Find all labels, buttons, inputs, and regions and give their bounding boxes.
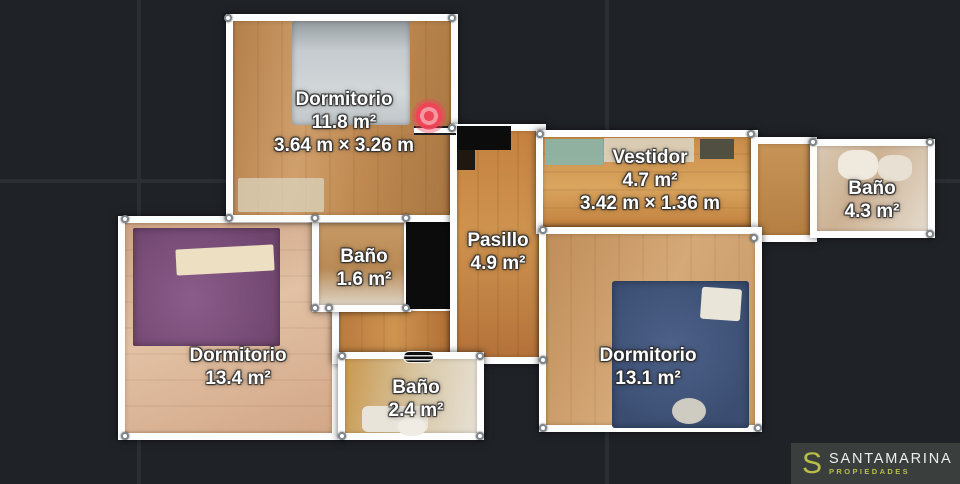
agency-logo-icon: S — [802, 449, 822, 479]
shelf-clutter — [604, 138, 694, 162]
shelf-clutter — [700, 139, 734, 159]
agency-name: SANTAMARINA — [829, 451, 952, 467]
wall-node — [536, 130, 544, 138]
pillow — [700, 287, 742, 322]
wall-node — [325, 304, 333, 312]
pillow — [175, 244, 274, 275]
wall-node — [750, 234, 758, 242]
agency-logo: S SANTAMARINA PROPIEDADES — [791, 443, 960, 484]
room-bano-central[interactable] — [312, 216, 411, 312]
wall-node — [338, 352, 346, 360]
wall-node — [311, 214, 319, 222]
floorplan-viewer: Dormitorio 11.8 m² 3.64 m × 3.26 m Vesti… — [0, 0, 960, 484]
wall-node — [539, 356, 547, 364]
wall-node — [402, 214, 410, 222]
wall-node — [539, 226, 547, 234]
toilet — [398, 418, 426, 436]
wall-node — [402, 304, 410, 312]
radiator-icon — [403, 351, 434, 363]
wall-node — [476, 352, 484, 360]
wall-node — [448, 14, 456, 22]
agency-tagline: PROPIEDADES — [829, 467, 952, 476]
wall-node — [224, 14, 232, 22]
wall-node — [311, 304, 319, 312]
wall-node — [338, 432, 346, 440]
wall-node — [747, 130, 755, 138]
wall-node — [926, 138, 934, 146]
wall-node — [121, 432, 129, 440]
dresser — [238, 178, 324, 212]
wall-node — [539, 424, 547, 432]
wall-node — [754, 424, 762, 432]
wall-node — [809, 138, 817, 146]
wall-node — [225, 214, 233, 222]
sink — [878, 155, 912, 181]
doorway-shadow — [457, 150, 475, 170]
wall-node — [926, 230, 934, 238]
camera-position-marker[interactable] — [409, 96, 449, 136]
shelf-clutter — [545, 139, 603, 165]
bed — [292, 21, 410, 125]
bathtub — [838, 150, 878, 180]
wall-node — [448, 124, 456, 132]
wall-node — [121, 215, 129, 223]
unscanned-void — [406, 219, 453, 309]
wall-node — [476, 432, 484, 440]
laundry-pile — [672, 398, 706, 424]
doorway-shadow — [457, 126, 511, 150]
